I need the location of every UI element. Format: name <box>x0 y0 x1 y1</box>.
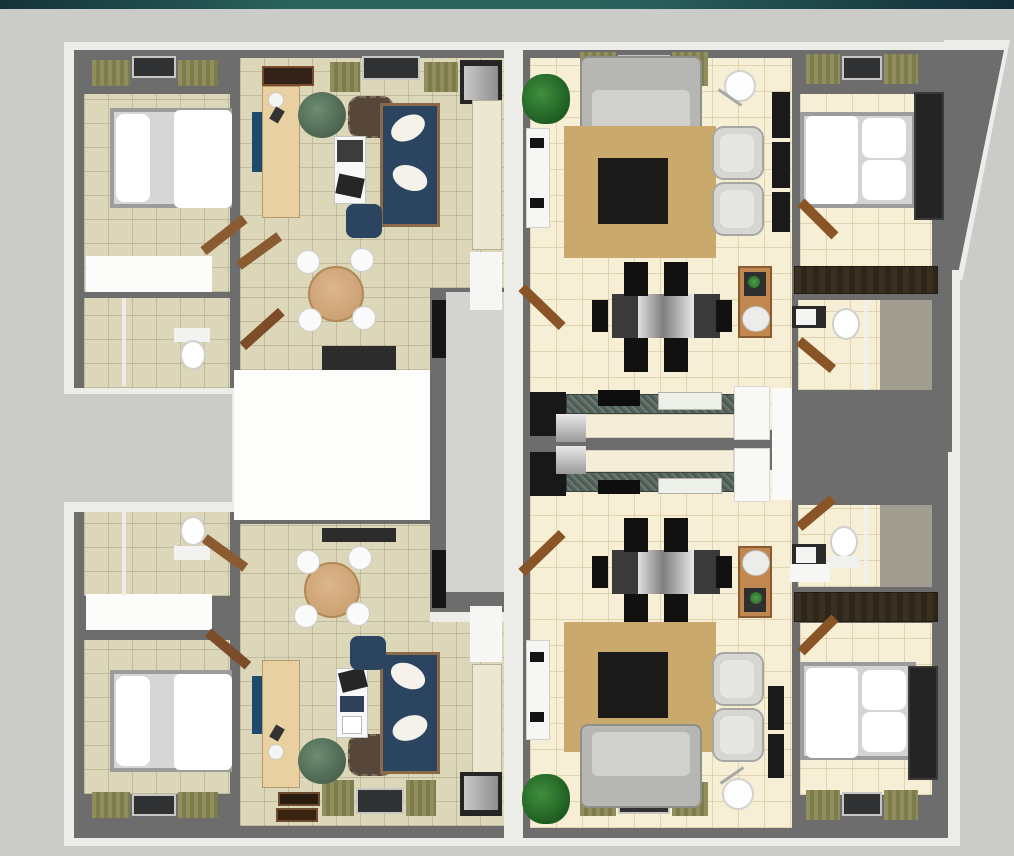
unit-mark-rb-1 <box>530 652 544 662</box>
top-accent-bar <box>0 0 1014 9</box>
card-lb[interactable] <box>342 716 362 734</box>
desk-rb-plant <box>750 592 762 604</box>
ottoman-lb-green[interactable] <box>298 738 346 784</box>
toilet-lb-tank[interactable] <box>174 546 210 560</box>
chair-rt-6[interactable] <box>716 300 732 332</box>
tray-lt[interactable] <box>337 140 363 162</box>
kitchen-lt-base[interactable] <box>470 252 502 310</box>
sideboard-lt[interactable] <box>322 346 396 370</box>
plant-rb[interactable] <box>522 774 570 824</box>
curtain-lb-bed-right[interactable] <box>178 792 218 818</box>
toilet-lt-bowl[interactable] <box>180 340 206 370</box>
appliance-rb-white[interactable] <box>734 448 770 502</box>
plant-rt[interactable] <box>522 74 570 124</box>
window-lt-living[interactable] <box>362 56 420 80</box>
chair-lt-1[interactable] <box>296 250 320 274</box>
desk-rt-chair[interactable] <box>742 306 770 332</box>
wardrobe-rb-slat-2[interactable] <box>768 734 784 778</box>
bed-rt-pillow-2 <box>862 160 906 200</box>
toilet-rt-bowl[interactable] <box>832 308 860 340</box>
corridor-floor <box>446 292 504 592</box>
bed-rb-pillow-2 <box>862 712 906 752</box>
bed-lb-duvet <box>174 674 232 770</box>
shower-lb-glass[interactable] <box>122 512 126 596</box>
bed-rb-duvet <box>806 668 858 758</box>
sink-rb[interactable] <box>658 478 722 494</box>
frame-lb-floor-1[interactable] <box>278 792 320 806</box>
bed-rt-duvet <box>806 116 858 204</box>
counter-lt-white[interactable] <box>86 256 212 292</box>
counter-rt-front <box>578 414 734 438</box>
basin-rb <box>796 547 816 563</box>
fridge-lb-front <box>464 776 498 810</box>
curtain-lb-liv-right[interactable] <box>406 780 436 816</box>
ottoman-lt-green[interactable] <box>298 92 346 138</box>
basin-rt <box>796 309 816 325</box>
closet-rt-strip[interactable] <box>794 266 938 294</box>
cabinet-rb-white[interactable] <box>772 436 792 500</box>
appliance-rt-white[interactable] <box>734 386 770 440</box>
window-rt-bedroom[interactable] <box>842 56 882 80</box>
tray-lb[interactable] <box>340 696 364 712</box>
window-lt-bedroom[interactable] <box>132 56 176 78</box>
curtain-rb-bed-right[interactable] <box>884 790 918 820</box>
window-lb-living[interactable] <box>356 788 404 814</box>
chair-rb-6[interactable] <box>716 556 732 588</box>
unit-mark-rb-2 <box>530 712 544 722</box>
chair-rb-2[interactable] <box>664 518 688 552</box>
desk-rt-plant <box>748 276 760 288</box>
shower-rb-glass[interactable] <box>864 505 868 585</box>
fridge-lt-front <box>464 66 498 100</box>
chair-rt-1[interactable] <box>624 262 648 296</box>
desk-lb[interactable] <box>262 660 300 788</box>
wardrobe-rb-bedroom[interactable] <box>908 666 938 780</box>
dishwasher-rb[interactable] <box>556 446 586 474</box>
coffee-table-rb[interactable] <box>598 652 668 718</box>
divider-wall-center <box>504 42 516 846</box>
chair-lb-4[interactable] <box>346 602 370 626</box>
walls-wing-right <box>946 50 1004 270</box>
shower-rt-glass[interactable] <box>864 300 868 390</box>
chair-lt-3[interactable] <box>298 308 322 332</box>
curtain-rt-bed-right[interactable] <box>884 54 918 84</box>
armchair-rb-2-seat <box>720 716 754 754</box>
ottoman-lb-blue[interactable] <box>350 636 386 670</box>
sideboard-lb[interactable] <box>322 528 396 542</box>
plate-lb-desk[interactable] <box>268 744 284 760</box>
sofa-rb-seat <box>592 732 690 776</box>
toilet-rb-tank <box>828 556 860 568</box>
chair-lb-3[interactable] <box>294 604 318 628</box>
chair-lb-1[interactable] <box>296 550 320 574</box>
wardrobe-rb-slat-1[interactable] <box>768 686 784 730</box>
kitchen-lb-base[interactable] <box>470 606 502 662</box>
bath-rt-wall <box>880 300 932 390</box>
void-center-white <box>234 370 430 520</box>
curtain-lt-liv-left[interactable] <box>330 62 360 92</box>
chair-rt-2[interactable] <box>664 262 688 296</box>
painting-lt-wall[interactable] <box>262 66 314 86</box>
curtain-lt-bed-left[interactable] <box>92 60 130 86</box>
curtain-lb-liv-left[interactable] <box>322 780 354 816</box>
bed-lb-pillow <box>116 676 150 766</box>
bed-rt-pillow-1 <box>862 118 906 158</box>
curtain-rb-bed-left[interactable] <box>806 790 840 820</box>
armchair-rb-1-seat <box>720 660 754 698</box>
chair-rb-1[interactable] <box>624 518 648 552</box>
bed-lt-pillow <box>116 114 150 202</box>
monitor-lt-wall[interactable] <box>252 112 262 172</box>
curtain-lt-liv-right[interactable] <box>424 62 458 92</box>
closet-rb-strip[interactable] <box>794 592 938 622</box>
bed-lt-duvet <box>174 110 232 208</box>
kitchen-lt-column[interactable] <box>472 100 502 250</box>
counter-lb-white[interactable] <box>86 594 212 630</box>
bed-rb-pillow-1 <box>862 670 906 710</box>
corridor-doorway-upper[interactable] <box>432 300 446 358</box>
ottoman-lt-blue[interactable] <box>346 204 382 238</box>
toilet-rb-bowl[interactable] <box>830 526 858 558</box>
cooktop-rb[interactable] <box>598 480 640 494</box>
chair-lt-2[interactable] <box>350 248 374 272</box>
window-rb-bedroom[interactable] <box>842 792 882 816</box>
wardrobe-rt-slat-2[interactable] <box>772 142 790 188</box>
frame-lb-floor-2[interactable] <box>276 808 318 822</box>
corridor-doorway-lower[interactable] <box>432 550 446 608</box>
window-lb-bedroom[interactable] <box>132 794 176 816</box>
floorplan-3d-viewport[interactable] <box>0 0 1014 856</box>
unit-mark-rt-2 <box>530 198 544 208</box>
background-gap-left <box>64 394 232 502</box>
chair-lb-2[interactable] <box>348 546 372 570</box>
side-table-rb[interactable] <box>722 778 754 810</box>
chair-rt-5[interactable] <box>592 300 608 332</box>
wardrobe-rt-slat-3[interactable] <box>772 192 790 232</box>
cooktop-rt[interactable] <box>598 390 640 406</box>
shower-lt-glass[interactable] <box>122 298 126 386</box>
counter-rb-front <box>578 450 734 472</box>
armchair-rt-2-seat <box>720 190 754 228</box>
wardrobe-rt-slat-1[interactable] <box>772 92 790 138</box>
monitor-lb-wall[interactable] <box>252 676 262 734</box>
desk-rb-chair[interactable] <box>742 550 770 576</box>
wardrobe-rt-bedroom[interactable] <box>914 92 944 220</box>
chair-rb-5[interactable] <box>592 556 608 588</box>
table-runner-rb <box>638 550 694 594</box>
curtain-lt-bed-right[interactable] <box>178 60 218 86</box>
counter-rb-bath-white[interactable] <box>790 564 830 582</box>
sink-rt[interactable] <box>658 392 722 410</box>
chair-rt-4[interactable] <box>664 338 688 372</box>
coffee-table-rt[interactable] <box>598 158 668 224</box>
armchair-rt-1-seat <box>720 134 754 172</box>
floor-lt-bath <box>84 298 230 388</box>
curtain-rt-bed-left[interactable] <box>806 54 840 84</box>
unit-mark-rt-1 <box>530 138 544 148</box>
bath-rb-wall <box>880 505 932 587</box>
chair-lt-4[interactable] <box>352 306 376 330</box>
chair-rt-3[interactable] <box>624 338 648 372</box>
curtain-lb-bed-left[interactable] <box>92 792 130 818</box>
dishwasher-rt[interactable] <box>556 414 586 442</box>
table-runner-rt <box>638 294 694 338</box>
